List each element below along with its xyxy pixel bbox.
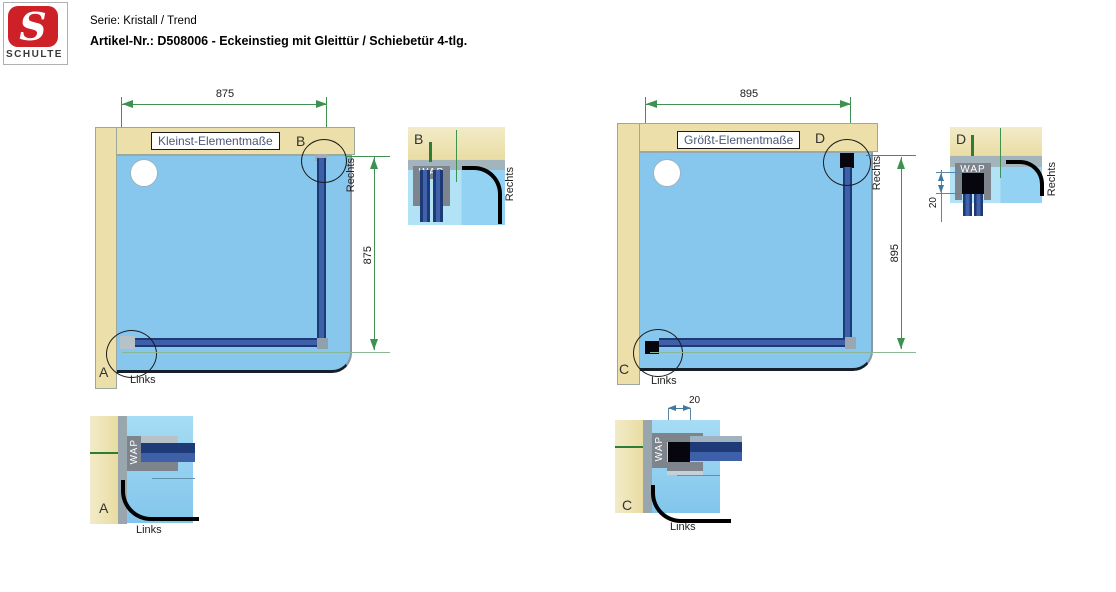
width-dimension-value: 875 (190, 88, 260, 100)
side-label-links: Links (136, 524, 162, 536)
glass-panel (690, 442, 742, 452)
glass-panel (433, 170, 443, 222)
corner-label-c: C (619, 361, 629, 377)
extension-line (122, 352, 390, 353)
wap-profile-text: WAP (654, 436, 665, 461)
dimension-arrow-left (668, 405, 676, 411)
side-label-rechts: Rechts (871, 156, 883, 190)
dimension-line-height (374, 157, 375, 350)
datasheet-page: S SCHULTE Serie: Kristall / Trend Artike… (0, 0, 1116, 592)
profile-corner-piece (317, 338, 328, 349)
extension-line (650, 352, 916, 353)
schulte-logo: S SCHULTE (3, 2, 68, 65)
detail-circle-b (301, 139, 347, 183)
tray-corner-outline (651, 485, 731, 523)
side-label-rechts: Rechts (345, 158, 357, 192)
dimension-arrow-up (370, 158, 378, 169)
wap-profile-label: WAP (127, 436, 141, 471)
dimension-arrow-down (897, 338, 905, 349)
glass-panel (974, 194, 983, 216)
corner-label-b: B (296, 133, 305, 149)
detail-circle-c (633, 329, 683, 377)
extension-profile-block (962, 173, 984, 194)
detail-circle-a (106, 330, 157, 378)
corner-label-a: A (99, 364, 108, 380)
width-dimension-value: 895 (714, 88, 784, 100)
glass-panel (141, 443, 195, 453)
corner-label-d: D (815, 130, 825, 146)
profile-corner-piece (845, 337, 856, 349)
dimension-arrow-down (938, 185, 944, 193)
wap-profile-arm (984, 176, 991, 200)
dimension-arrow-right (316, 100, 327, 108)
glass-edge-mark (429, 142, 432, 162)
wap-profile-arm (955, 176, 962, 200)
glass-profile-vertical (843, 167, 852, 345)
side-label-links: Links (651, 375, 677, 387)
dimension-arrow-up (897, 158, 905, 169)
extension-line (936, 193, 962, 194)
drain-circle (130, 159, 158, 187)
wap-profile-text: WAP (129, 439, 140, 464)
dimension-arrow-right (840, 100, 851, 108)
glass-profile-horizontal (129, 338, 319, 347)
glass-panel (690, 452, 742, 461)
glass-edge-mark (615, 446, 643, 448)
dimension-arrow-up (938, 173, 944, 181)
detail-label-d: D (956, 131, 966, 147)
article-number-label: Artikel-Nr.: D508006 - Eckeinstieg mit G… (90, 34, 467, 48)
height-dimension-value: 895 (889, 244, 901, 262)
glass-profile-vertical (317, 158, 326, 347)
wap-profile-label: WAP (413, 166, 450, 179)
wap-profile-arm (443, 179, 450, 206)
dimension-line-height (901, 157, 902, 349)
logo-letter-icon: S (8, 6, 58, 47)
side-label-links: Links (130, 374, 156, 386)
glass-edge-mark (971, 135, 974, 156)
logo-brand-text: SCHULTE (4, 49, 65, 60)
profile-flange-bottom (667, 462, 703, 471)
extension-profile-block (668, 442, 690, 462)
extension-line (345, 156, 390, 157)
dimension-arrow-left (122, 100, 133, 108)
dimension-arrow-down (370, 339, 378, 350)
diagram-title: Kleinst-Elementmaße (151, 132, 280, 150)
glass-panel (141, 453, 195, 462)
reference-line (677, 475, 720, 476)
height-dimension-value: 875 (362, 246, 374, 264)
profile-flange-bottom (141, 462, 178, 471)
glass-panel (420, 170, 430, 222)
tray-corner-outline (121, 480, 199, 521)
series-label: Serie: Kristall / Trend (90, 15, 197, 27)
detail-label-a: A (99, 500, 108, 516)
detail-circle-d (823, 139, 871, 186)
reference-line (152, 478, 195, 479)
extension-line (1000, 128, 1001, 178)
glass-panel (963, 194, 972, 216)
wap-profile-label: WAP (652, 433, 667, 468)
diagram-title: Größt-Elementmaße (677, 131, 800, 149)
wap-profile-arm (413, 179, 420, 206)
drain-circle (653, 159, 681, 187)
side-label-links: Links (670, 521, 696, 533)
detail-label-c: C (622, 497, 632, 513)
dimension-line-width (646, 104, 851, 105)
extension-line (456, 130, 457, 182)
dimension-arrow-left (646, 100, 657, 108)
glass-profile-horizontal (659, 338, 845, 347)
side-label-rechts: Rechts (504, 167, 516, 201)
detail-label-b: B (414, 131, 423, 147)
extension-dimension-value: 20 (928, 197, 939, 208)
side-label-rechts: Rechts (1046, 162, 1058, 196)
glass-edge-mark (90, 452, 118, 454)
dimension-line-width (122, 104, 327, 105)
